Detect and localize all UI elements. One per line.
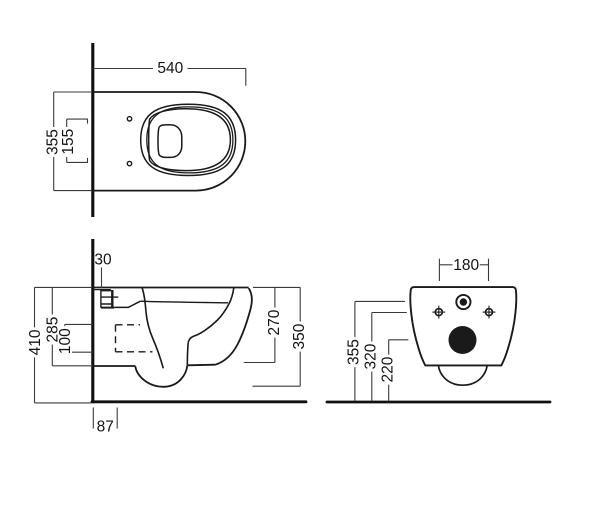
svg-text:350: 350	[291, 323, 308, 349]
svg-text:100: 100	[57, 328, 74, 354]
svg-text:540: 540	[157, 60, 183, 77]
svg-text:87: 87	[97, 419, 114, 436]
svg-text:270: 270	[266, 309, 283, 335]
svg-text:320: 320	[363, 343, 380, 369]
svg-text:30: 30	[94, 252, 112, 269]
svg-text:355: 355	[346, 339, 363, 365]
svg-text:155: 155	[60, 129, 77, 155]
svg-text:180: 180	[453, 257, 479, 274]
svg-text:410: 410	[27, 329, 44, 355]
svg-text:220: 220	[379, 356, 396, 382]
